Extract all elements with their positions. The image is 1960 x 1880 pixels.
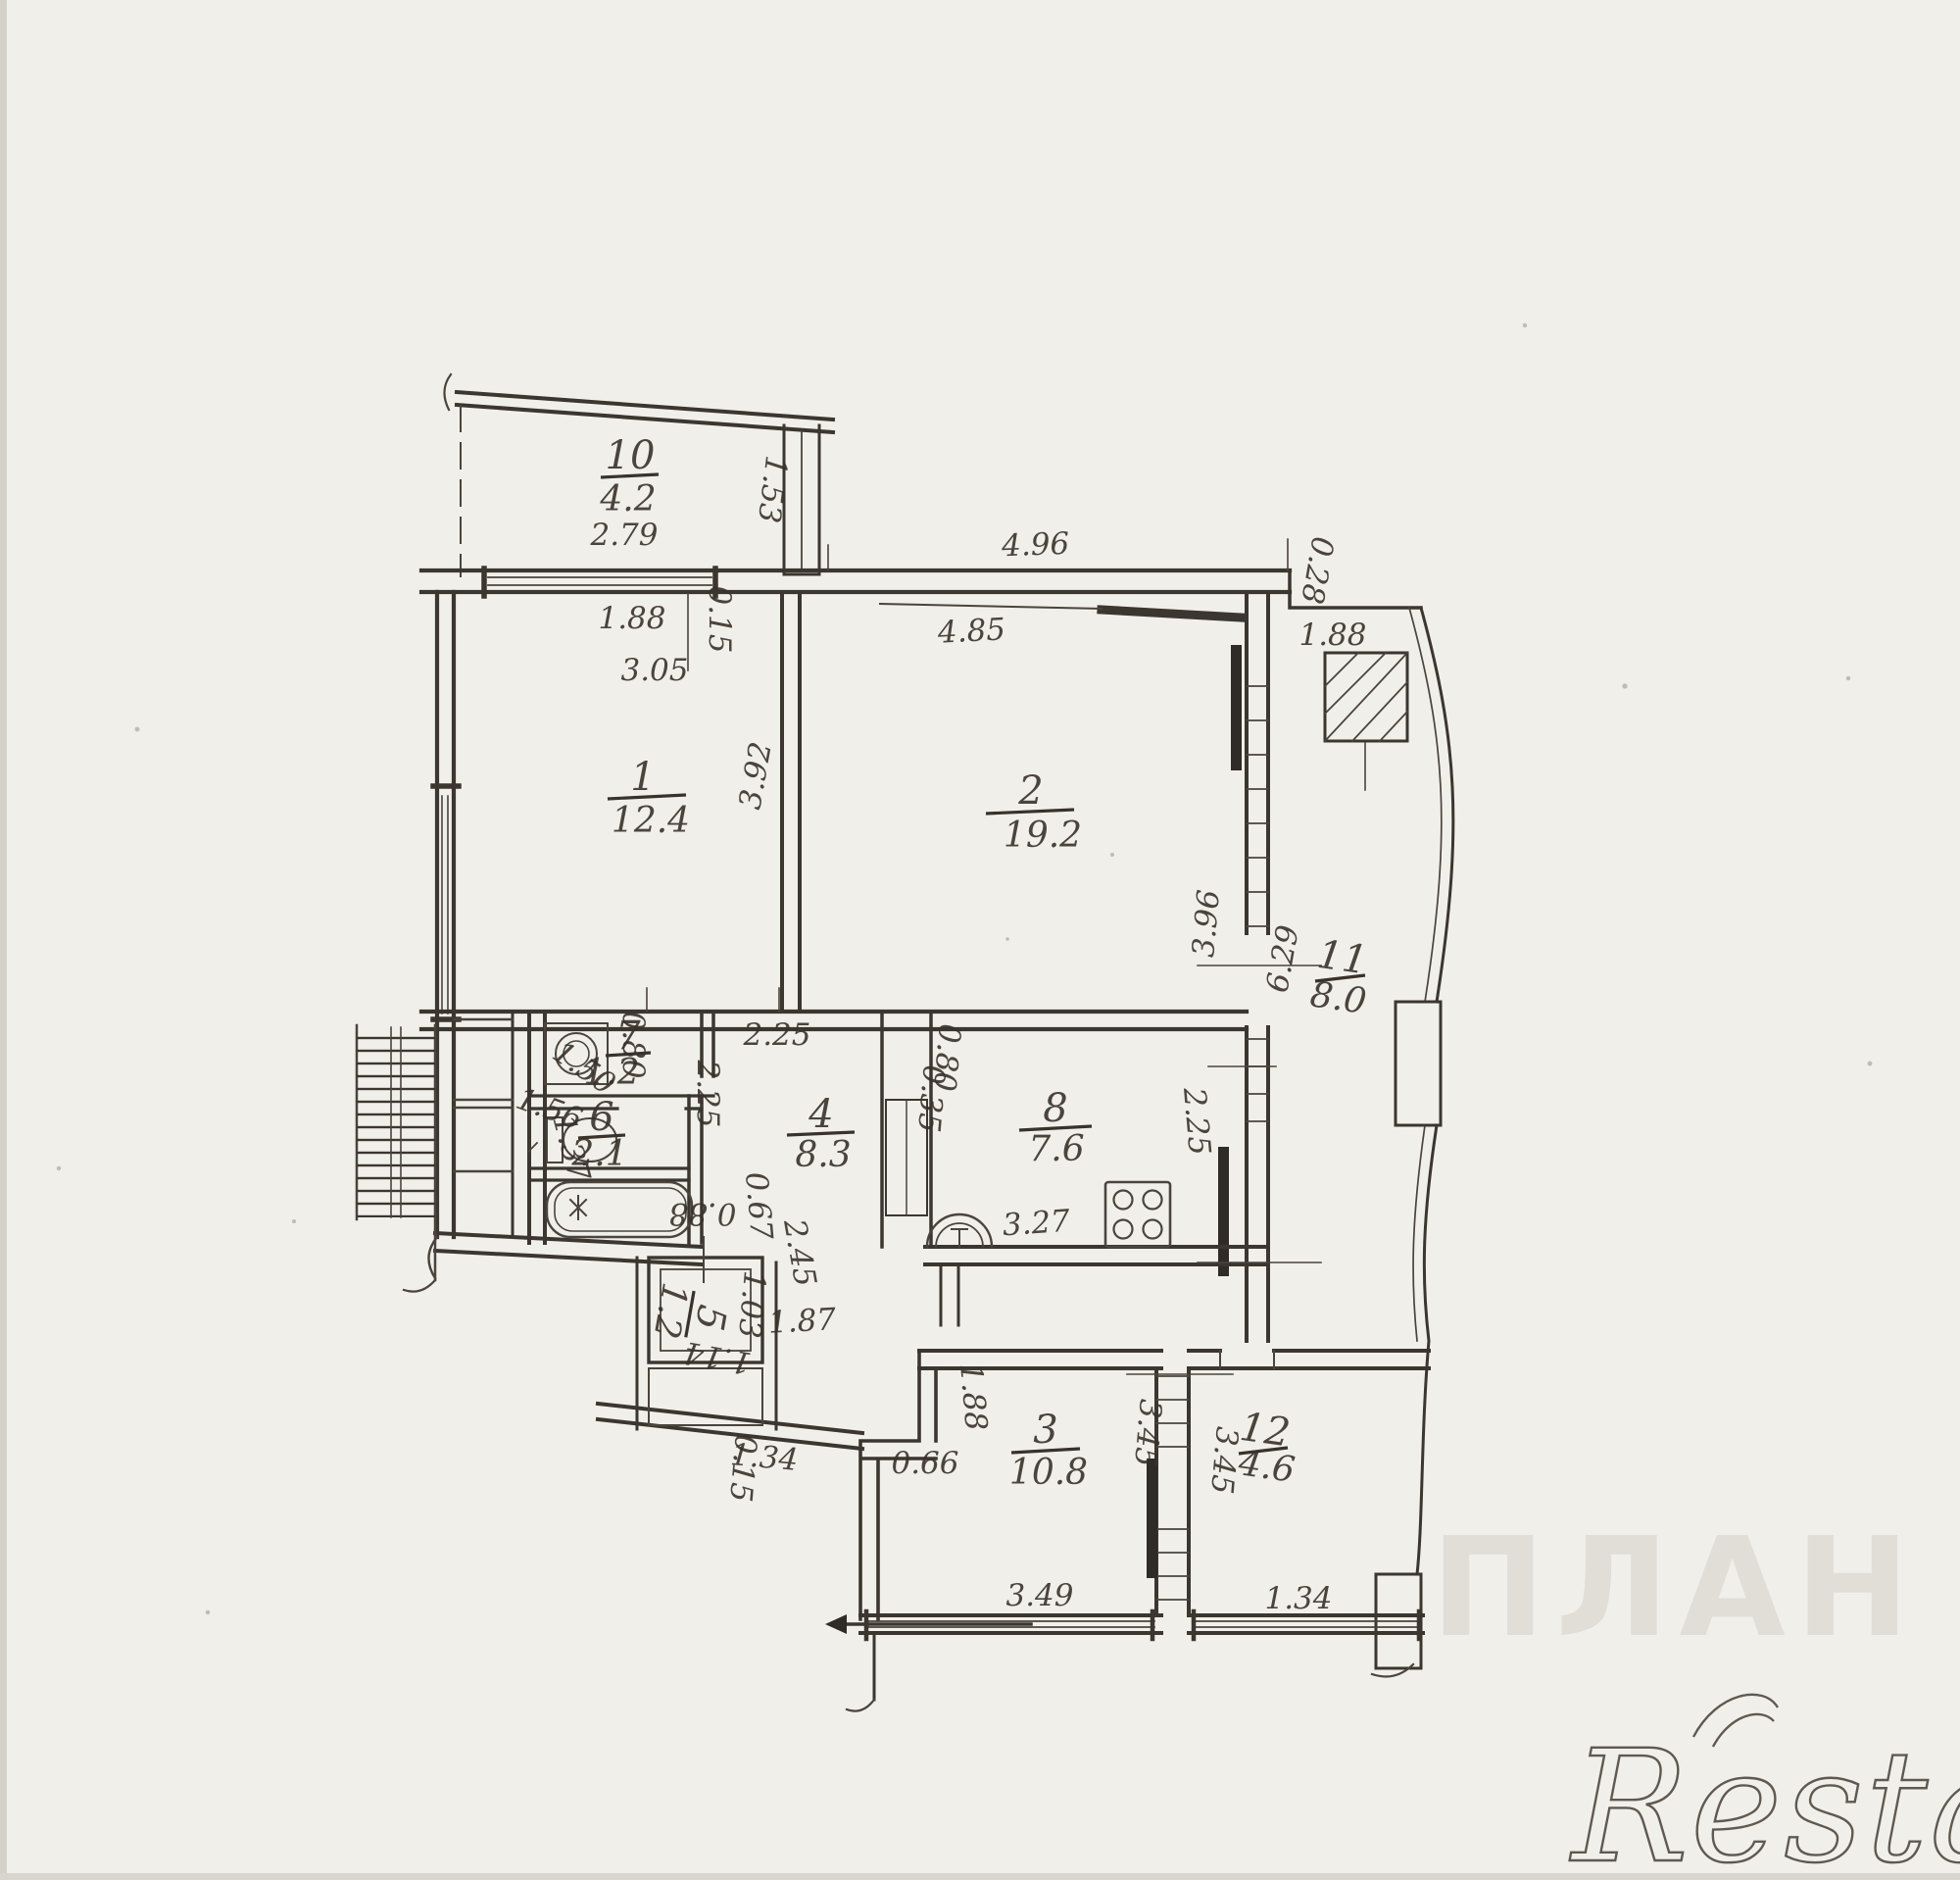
room12-door-jambs	[1220, 1351, 1274, 1368]
dim-0-15-top: 0.15	[702, 585, 737, 653]
room-4-number: 4	[808, 1092, 833, 1137]
wall-room1-room2	[782, 592, 800, 1012]
room12-bottom-window	[1196, 1621, 1417, 1627]
bathtub-tap-icon	[570, 1196, 586, 1219]
room-1-number: 1	[630, 755, 655, 800]
corridor-stub-wall	[941, 1264, 958, 1325]
room-8-number: 8	[1043, 1086, 1067, 1131]
room-12-area: 4.6	[1235, 1443, 1297, 1491]
closet-cells-dividers	[454, 1019, 513, 1171]
stove-icon	[1105, 1182, 1170, 1247]
break-symbol-top-left	[444, 374, 451, 410]
hook-below-room3	[847, 1700, 874, 1711]
dim-0-67: 0.67	[738, 1170, 779, 1241]
loggia-window-rungs-upper	[1247, 686, 1268, 926]
dim-4-85: 4.85	[936, 612, 1006, 651]
dim-1-87: 1.87	[767, 1302, 837, 1341]
wetblock-left-wall	[529, 1012, 545, 1243]
dim-1-88-room3: 1.88	[953, 1361, 994, 1432]
restate-logo-text: Restate	[1569, 1717, 1960, 1880]
room-11-label: 11 8.0	[1307, 932, 1370, 1022]
room-10-area: 4.2	[599, 479, 656, 519]
dimension-extension-lines	[647, 539, 1365, 1374]
room-3-area: 10.8	[1009, 1453, 1088, 1493]
room-2-number: 2	[1017, 768, 1043, 814]
dim-2-25-hall-left: 2.25	[690, 1059, 725, 1127]
dim-0-35: 0.35	[910, 1064, 952, 1134]
loggia-outer-edge	[1417, 608, 1453, 1574]
left-exterior-wall	[437, 592, 454, 1237]
dim-2-25-hall-top: 2.25	[742, 1017, 810, 1053]
dim-3-27: 3.27	[1002, 1204, 1072, 1244]
window-room2-lintel	[1102, 610, 1241, 618]
room-4-label: 4 8.3	[787, 1092, 855, 1175]
room-4-area: 8.3	[795, 1135, 851, 1175]
staircase-icon	[357, 1027, 435, 1217]
dim-1-03: 1.03	[731, 1269, 772, 1340]
dim-0-80-room7: 0.80	[615, 1011, 651, 1078]
room-3-number: 3	[1033, 1408, 1057, 1453]
room-5-area: 1.2	[646, 1279, 695, 1342]
door-leaf-room2-loggia	[1231, 645, 1242, 770]
top-exterior-wall	[421, 570, 1290, 592]
walls	[357, 374, 1453, 1711]
room-2-label: 2 19.2	[986, 768, 1082, 856]
dim-2-25-room8: 2.25	[1176, 1085, 1217, 1157]
dim-0-66: 0.66	[891, 1446, 958, 1481]
room-1-fraction-line	[608, 795, 686, 799]
window-room2-sill	[880, 604, 1102, 609]
dim-0-28: 0.28	[1294, 534, 1340, 607]
room-1-area: 12.4	[612, 801, 690, 841]
dim-3-96: 3.96	[1186, 888, 1227, 959]
room12-bottom-wall	[1189, 1615, 1423, 1633]
dim-2-45: 2.45	[776, 1215, 823, 1289]
room-10-number: 10	[606, 433, 656, 478]
break-symbol-loggia-bottom	[1372, 1664, 1413, 1676]
loggia-window-rungs-lower	[1247, 1039, 1268, 1121]
dim-0-15-entry: 0.15	[722, 1433, 763, 1504]
dim-3-92: 3.92	[732, 739, 778, 812]
dim-0-88: 0.88	[668, 1196, 736, 1231]
room-2-fraction-line	[986, 810, 1074, 814]
dim-4-96: 4.96	[1001, 526, 1070, 564]
door-leaf-kitchen-loggia	[1218, 1147, 1229, 1276]
room-1-label: 1 12.4	[608, 755, 690, 841]
dim-1-14: 1.14	[681, 1334, 754, 1380]
room-11-area: 8.0	[1307, 974, 1368, 1022]
floor-plan-drawing: 10 4.2 1 12.4 2 19.2 11 8.0 7	[0, 0, 1960, 1880]
room12-top-wall	[1189, 1351, 1429, 1368]
room-2-area: 19.2	[1004, 816, 1082, 856]
dim-3-45-right: 3.45	[1203, 1425, 1245, 1496]
restate-logo: Restate	[1569, 1695, 1960, 1880]
dim-3-45-left: 3.45	[1127, 1398, 1168, 1468]
room-8-label: 8 7.6	[1019, 1086, 1092, 1169]
dimension-labels: 2.79 1.53 1.88 0.15 3.05 4.96 0.28 4.85 …	[512, 454, 1367, 1616]
window-top	[488, 577, 711, 585]
dim-1-34-room12: 1.34	[1264, 1581, 1332, 1616]
background-watermark-text: ПЛАН	[1431, 1509, 1920, 1668]
dim-3-49: 3.49	[1005, 1578, 1073, 1613]
room-10-label: 10 4.2	[599, 433, 659, 519]
room-8-area: 7.6	[1028, 1129, 1084, 1169]
dim-1-53: 1.53	[751, 454, 794, 525]
dim-1-88-loggia: 1.88	[1298, 618, 1366, 653]
room3-left-step-wall	[860, 1351, 936, 1619]
loggia-vent-shaft-icon	[1325, 653, 1407, 741]
dim-3-05: 3.05	[620, 653, 688, 688]
staircase-hook	[404, 1280, 435, 1292]
room-5-number: 5	[686, 1302, 735, 1334]
dim-1-88-top: 1.88	[598, 601, 665, 636]
balcony-10-top-wall	[457, 392, 833, 432]
dim-2-79: 2.79	[589, 518, 658, 553]
watermarks: ПЛАН Restate	[1431, 1509, 1960, 1880]
loggia-window-box	[1396, 1002, 1441, 1125]
window-left	[442, 796, 448, 1014]
room-12-label: 12 4.6	[1235, 1405, 1297, 1491]
room-3-label: 3 10.8	[1009, 1408, 1088, 1493]
door-leaf-room3-room12	[1147, 1459, 1157, 1578]
kitchen-sink-icon	[927, 1214, 992, 1247]
scanned-floor-plan-page: 10 4.2 1 12.4 2 19.2 11 8.0 7	[0, 0, 1960, 1880]
